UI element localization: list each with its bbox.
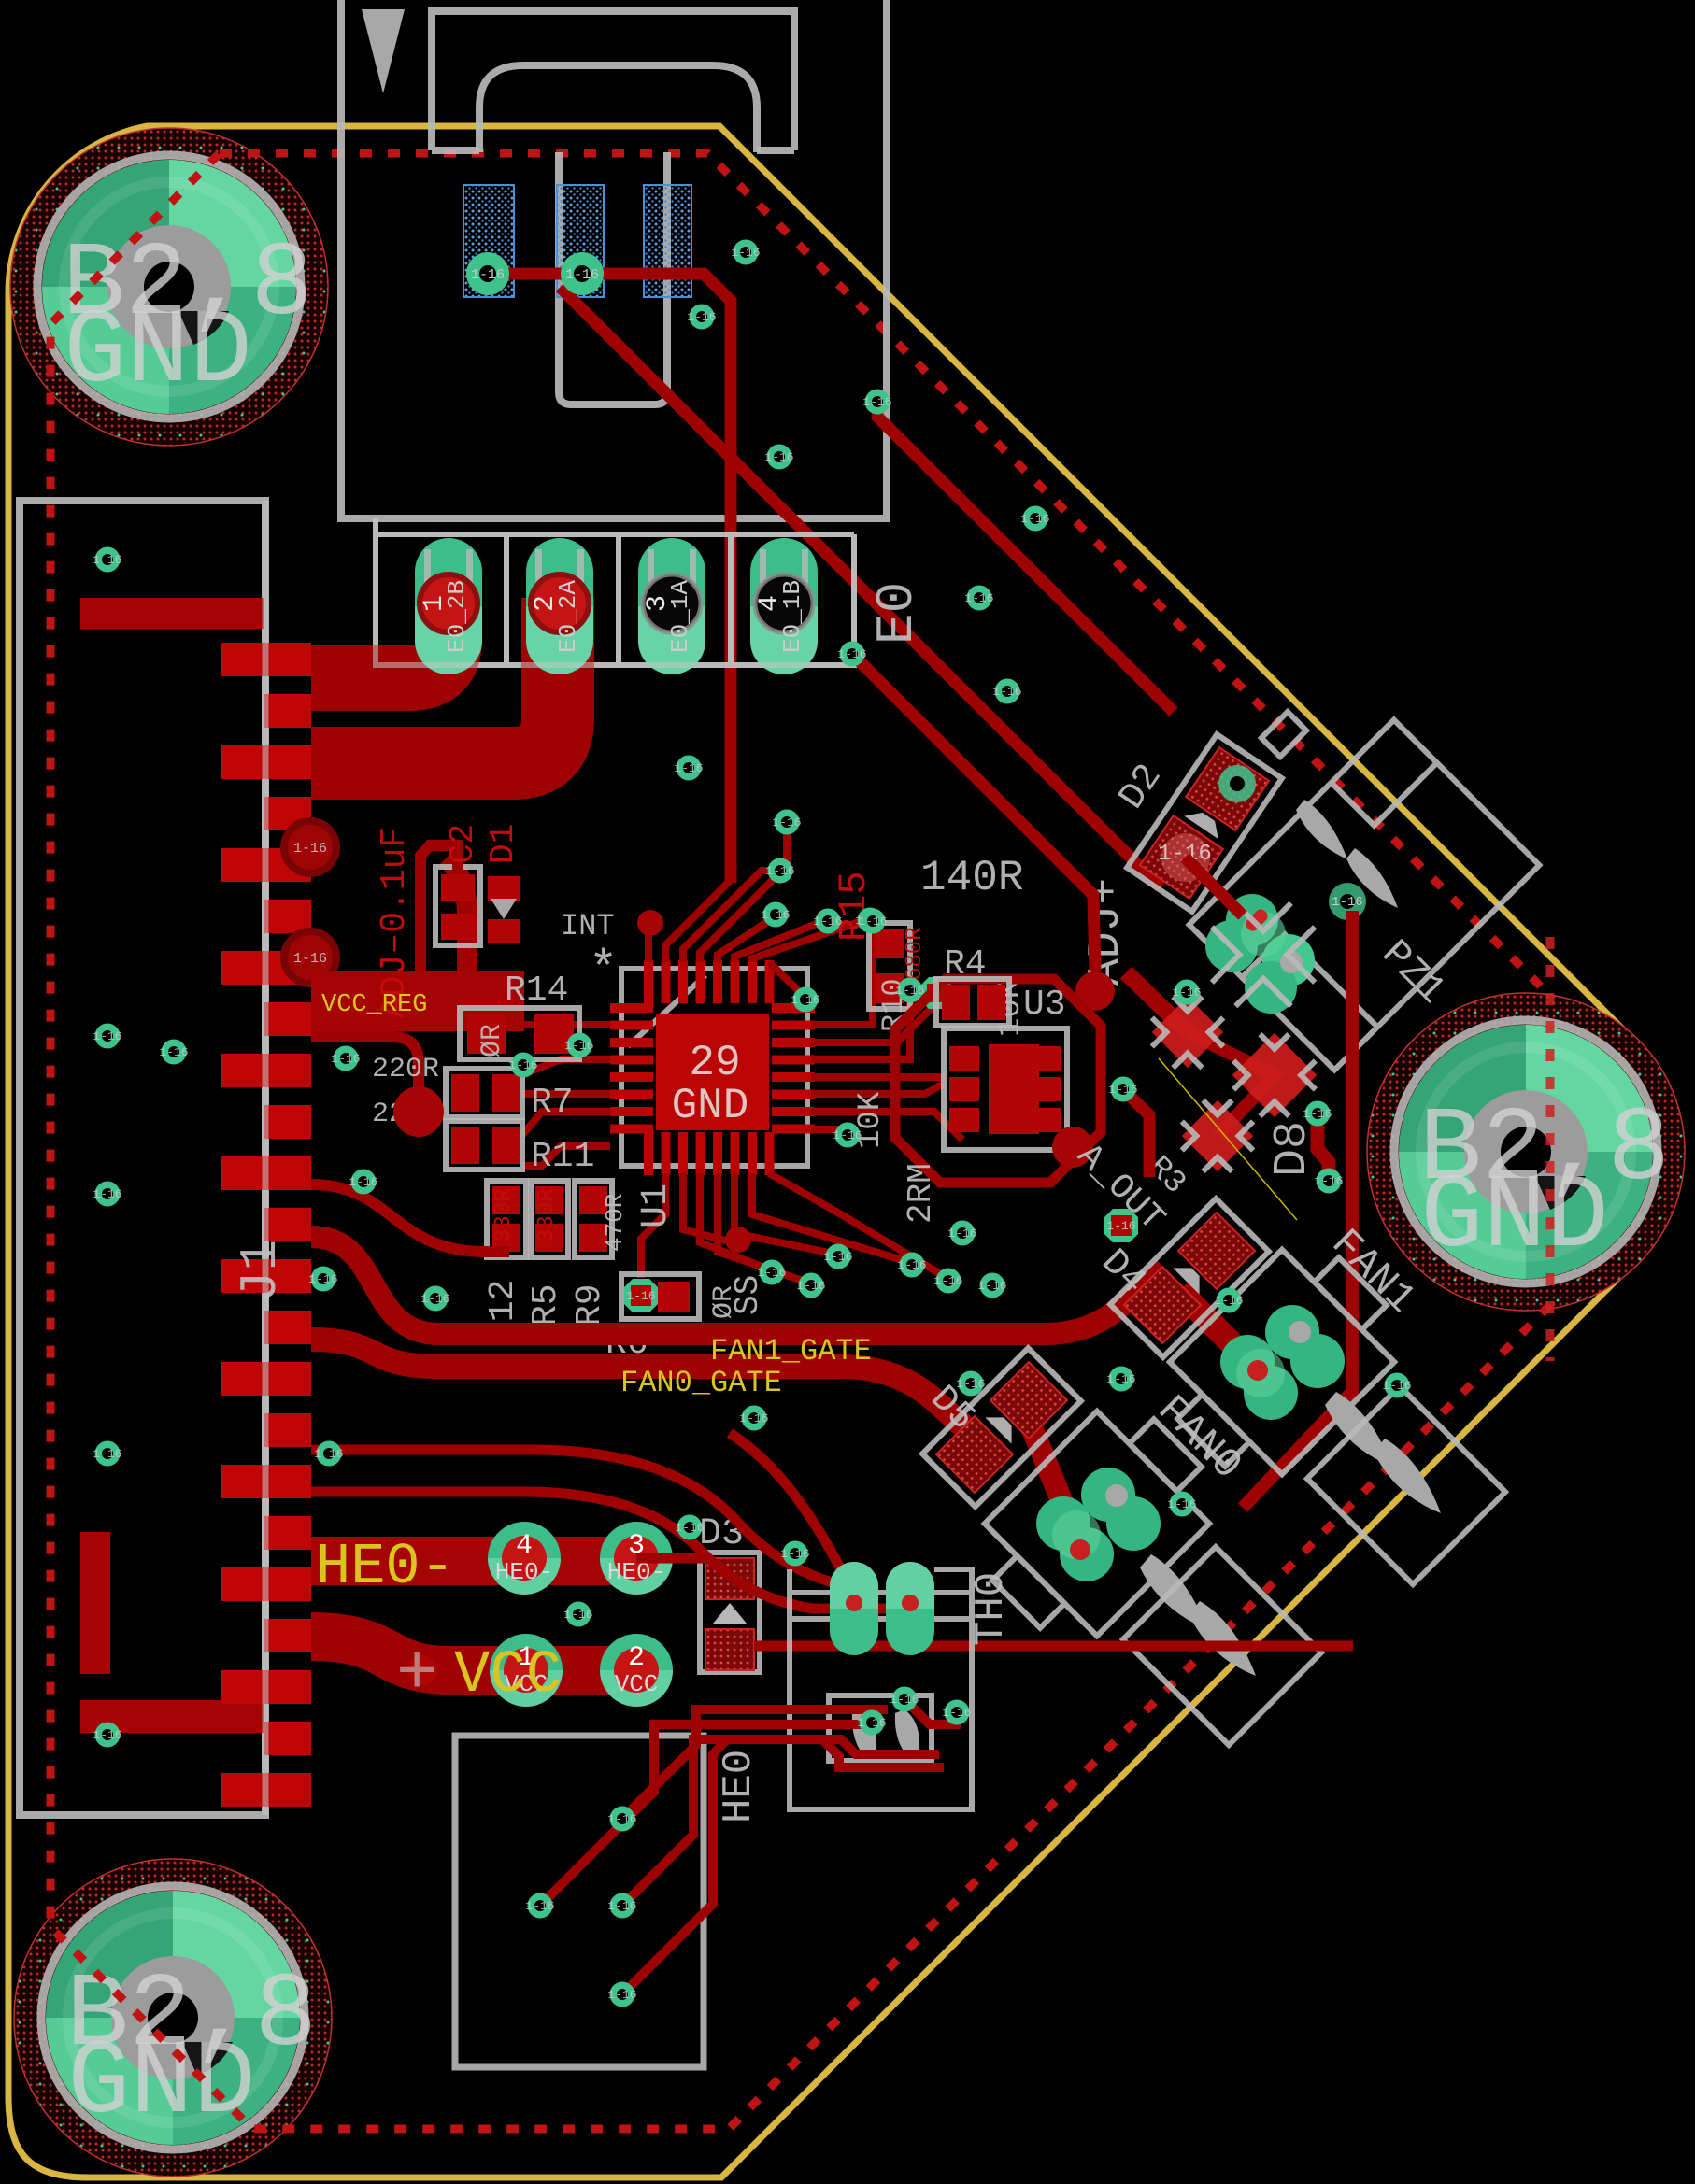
svg-text:INT: INT <box>561 909 615 943</box>
svg-text:1-16: 1-16 <box>761 908 790 922</box>
svg-text:1-16: 1-16 <box>765 864 794 878</box>
svg-text:*: * <box>589 943 618 998</box>
svg-text:1-16: 1-16 <box>823 1250 852 1264</box>
svg-text:1-16: 1-16 <box>858 915 887 929</box>
svg-text:VCC: VCC <box>454 1642 562 1709</box>
svg-text:HE0: HE0 <box>716 1750 762 1823</box>
svg-text:R4: R4 <box>944 944 987 985</box>
svg-text:1-16: 1-16 <box>977 1279 1006 1293</box>
svg-text:1-16: 1-16 <box>1214 1294 1243 1308</box>
svg-text:1-16: 1-16 <box>731 246 760 260</box>
svg-text:1-16: 1-16 <box>1106 1219 1135 1233</box>
svg-text:1-16: 1-16 <box>796 1279 825 1293</box>
svg-text:1-16: 1-16 <box>764 450 793 464</box>
svg-text:1-16: 1-16 <box>93 553 121 567</box>
svg-text:C2: C2 <box>444 824 482 864</box>
svg-text:1-16: 1-16 <box>93 1447 121 1461</box>
svg-text:U1: U1 <box>635 1184 677 1228</box>
svg-text:1-16: 1-16 <box>159 1045 188 1059</box>
svg-text:140R: 140R <box>920 854 1023 902</box>
svg-text:GND: GND <box>672 1082 749 1130</box>
svg-text:VCC_REG: VCC_REG <box>321 991 427 1019</box>
svg-text:VCC: VCC <box>615 1670 659 1698</box>
svg-text:1-16: 1-16 <box>1106 1372 1135 1386</box>
svg-text:1-16: 1-16 <box>293 951 327 967</box>
svg-text:1-16: 1-16 <box>813 915 842 929</box>
svg-text:E0_1B: E0_1B <box>778 580 806 653</box>
svg-text:1-16: 1-16 <box>862 395 891 409</box>
svg-text:R14: R14 <box>505 971 568 1011</box>
svg-text:1-16: 1-16 <box>1382 1379 1411 1393</box>
svg-text:E0_2B: E0_2B <box>443 580 471 653</box>
svg-text:TH0: TH0 <box>968 1572 1015 1646</box>
svg-text:E0_2A: E0_2A <box>554 580 582 653</box>
svg-text:U3: U3 <box>1023 985 1066 1025</box>
svg-text:J1: J1 <box>231 1240 291 1302</box>
svg-text:1-16: 1-16 <box>607 1899 636 1913</box>
svg-text:FAN1_GATE: FAN1_GATE <box>710 1334 872 1369</box>
svg-text:1-16: 1-16 <box>308 1272 337 1286</box>
svg-text:1-16: 1-16 <box>675 1521 704 1535</box>
svg-text:330R: 330R <box>534 1188 560 1242</box>
svg-text:470R: 470R <box>601 1194 629 1252</box>
svg-text:1-16: 1-16 <box>772 815 801 830</box>
svg-text:1-16: 1-16 <box>564 1039 593 1053</box>
svg-text:1-16: 1-16 <box>674 761 703 775</box>
svg-text:R7: R7 <box>531 1083 574 1123</box>
svg-text:1-16: 1-16 <box>607 1988 636 2002</box>
svg-text:1-16: 1-16 <box>890 1693 919 1707</box>
svg-text:1-16: 1-16 <box>992 685 1021 699</box>
svg-text:GND: GND <box>1420 1158 1609 1277</box>
svg-text:1-16: 1-16 <box>607 1812 636 1826</box>
svg-text:1-16: 1-16 <box>331 1052 360 1066</box>
svg-text:1-16: 1-16 <box>964 591 993 605</box>
svg-text:1-16: 1-16 <box>1020 512 1049 526</box>
svg-text:1-16: 1-16 <box>93 1029 121 1043</box>
svg-text:1-16: 1-16 <box>1303 1107 1332 1121</box>
svg-text:HE0-: HE0- <box>316 1534 455 1600</box>
svg-text:1-16: 1-16 <box>314 1447 343 1461</box>
svg-text:1-16: 1-16 <box>933 1274 962 1288</box>
svg-text:E0: E0 <box>867 582 927 645</box>
svg-text:1-16: 1-16 <box>780 1547 809 1561</box>
svg-text:HE0-: HE0- <box>495 1558 553 1586</box>
svg-text:1-16: 1-16 <box>349 1175 377 1189</box>
svg-text:1-16: 1-16 <box>508 1058 537 1072</box>
svg-text:1-16: 1-16 <box>565 267 599 283</box>
svg-text:1-16: 1-16 <box>93 1728 121 1742</box>
svg-text:1-16: 1-16 <box>956 1377 985 1391</box>
svg-text:1-16: 1-16 <box>947 1227 976 1241</box>
svg-text:1-16: 1-16 <box>837 647 866 661</box>
svg-text:1-16: 1-16 <box>293 841 327 857</box>
svg-text:SS: SS <box>729 1275 767 1315</box>
svg-text:2: 2 <box>628 1642 645 1674</box>
svg-text:1-16: 1-16 <box>626 1289 655 1303</box>
svg-text:R9: R9 <box>570 1283 610 1326</box>
svg-text:1-16: 1-16 <box>1314 1174 1343 1188</box>
svg-text:1-16: 1-16 <box>739 1411 768 1425</box>
svg-text:220R: 220R <box>372 1054 439 1085</box>
svg-text:1-16: 1-16 <box>791 993 819 1007</box>
svg-text:1-16: 1-16 <box>1172 986 1201 1000</box>
svg-text:E0_1A: E0_1A <box>666 580 694 653</box>
svg-text:1-16: 1-16 <box>757 1266 786 1280</box>
svg-text:1-16: 1-16 <box>525 1899 554 1913</box>
svg-text:ØR: ØR <box>477 1024 508 1057</box>
svg-text:1-16: 1-16 <box>895 984 924 998</box>
svg-text:ADJ–0.1uF: ADJ–0.1uF <box>375 827 415 1018</box>
svg-text:1-16: 1-16 <box>857 1716 886 1730</box>
svg-text:4: 4 <box>516 1530 533 1562</box>
svg-text:1-16: 1-16 <box>1108 1083 1137 1097</box>
svg-text:1-16: 1-16 <box>420 1292 449 1306</box>
svg-text:1-16: 1-16 <box>563 1608 592 1622</box>
svg-text:330R: 330R <box>491 1188 517 1242</box>
svg-text:R5: R5 <box>526 1283 566 1326</box>
svg-text:1-16: 1-16 <box>471 267 505 283</box>
svg-text:D1: D1 <box>484 824 522 864</box>
svg-text:1-16: 1-16 <box>833 1128 862 1142</box>
svg-text:R11: R11 <box>531 1137 594 1177</box>
svg-text:2RM: 2RM <box>902 1163 940 1224</box>
svg-text:FAN0_GATE: FAN0_GATE <box>620 1366 782 1400</box>
svg-text:GND: GND <box>64 293 252 412</box>
svg-text:1-16: 1-16 <box>1167 1497 1196 1511</box>
svg-text:1-16: 1-16 <box>1332 895 1363 910</box>
svg-text:680R: 680R <box>903 927 928 981</box>
svg-text:1-16: 1-16 <box>687 310 716 324</box>
svg-text:1-16: 1-16 <box>942 1706 971 1720</box>
svg-text:1-16: 1-16 <box>93 1187 121 1201</box>
svg-text:GND: GND <box>67 2024 256 2143</box>
svg-text:29: 29 <box>689 1039 740 1087</box>
svg-text:+: + <box>396 1636 437 1714</box>
svg-text:1-16: 1-16 <box>897 1258 926 1272</box>
